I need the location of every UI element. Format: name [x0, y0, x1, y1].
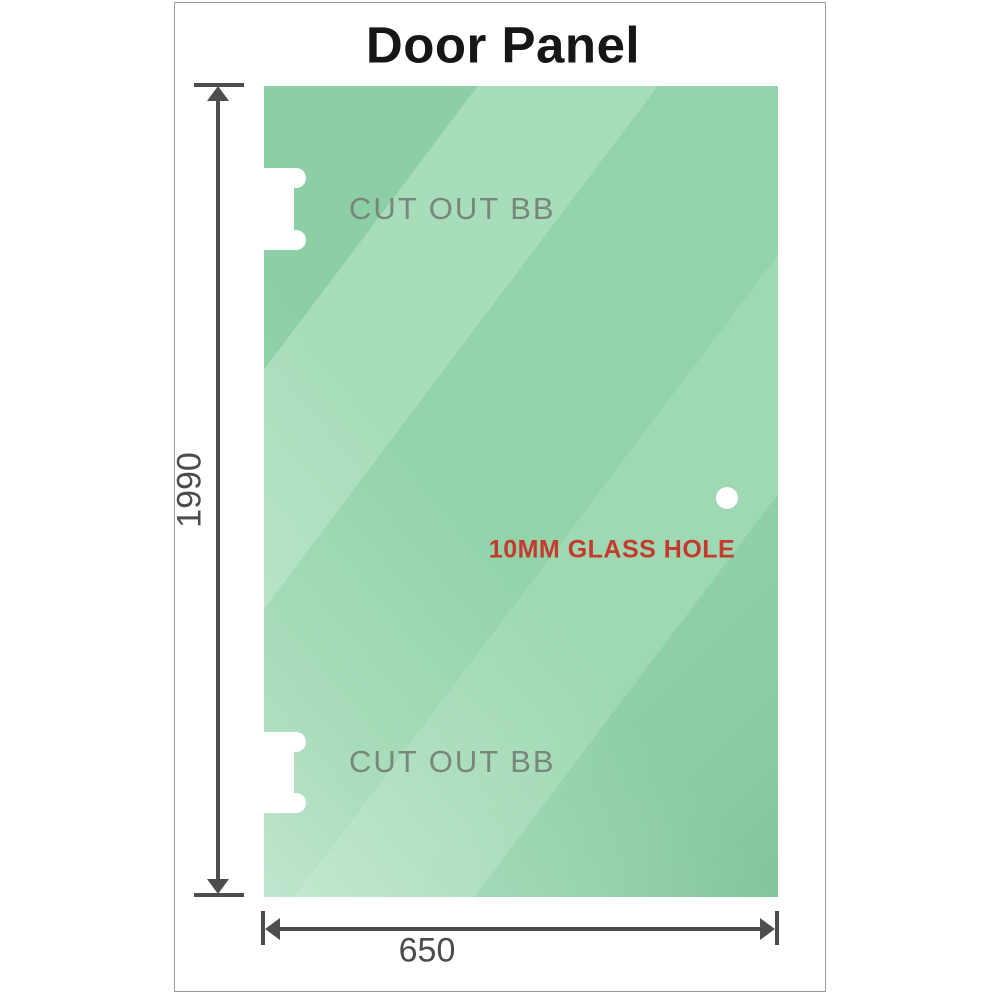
cutout-top-label: CUT OUT BB [349, 191, 556, 227]
width-dimension-label: 650 [399, 932, 456, 971]
diagram-canvas: Door Panel [0, 0, 1000, 1000]
cutout-bottom-label: CUT OUT BB [349, 744, 556, 780]
glass-hole-label: 10MM GLASS HOLE [489, 536, 735, 565]
diagram-title: Door Panel [366, 16, 640, 75]
height-dimension-label: 1990 [171, 452, 210, 528]
